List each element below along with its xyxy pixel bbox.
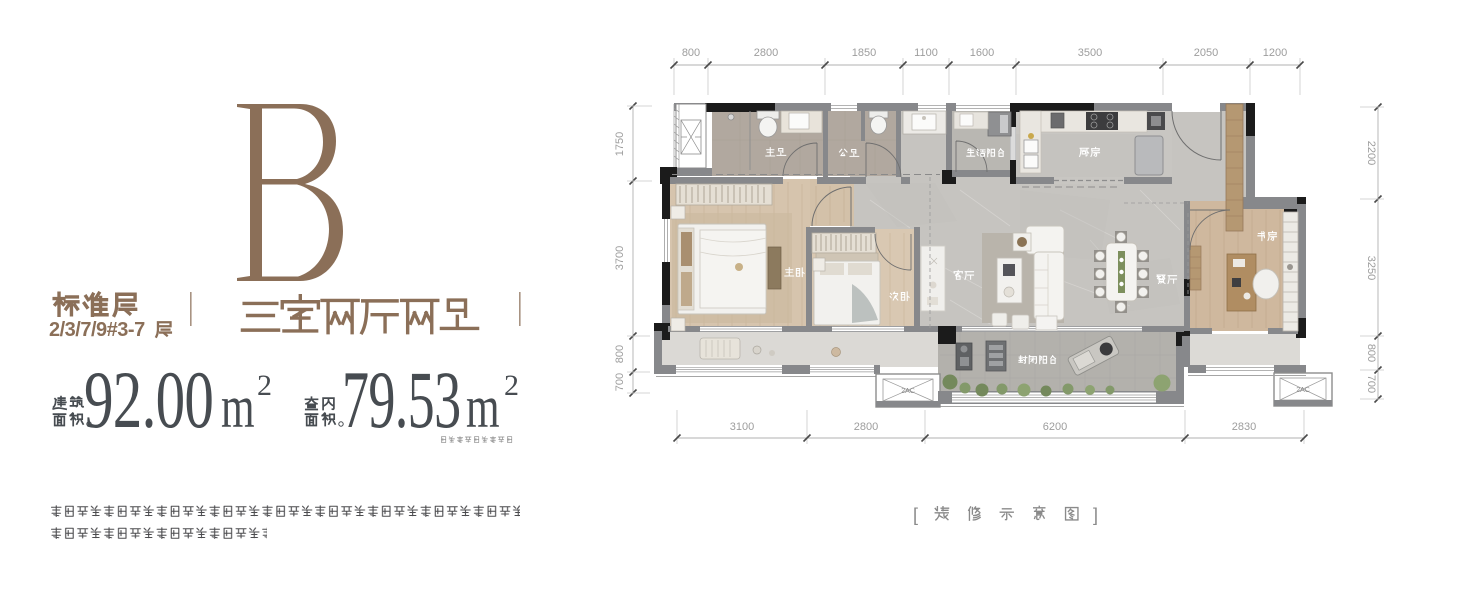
svg-text:1100: 1100 — [914, 47, 938, 59]
svg-text:m: m — [466, 374, 500, 441]
svg-text:]: ] — [1093, 505, 1098, 525]
svg-text:1600: 1600 — [970, 47, 994, 59]
svg-text:3500: 3500 — [1078, 47, 1102, 59]
svg-text:1850: 1850 — [852, 47, 876, 59]
svg-text:m: m — [221, 374, 255, 441]
svg-text:2800: 2800 — [854, 421, 878, 433]
svg-text:1200: 1200 — [1263, 47, 1287, 59]
svg-text:700: 700 — [1365, 375, 1377, 393]
svg-text:2AC: 2AC — [901, 388, 915, 395]
svg-text:92.00: 92.00 — [84, 355, 213, 446]
svg-text:2: 2 — [504, 369, 519, 402]
svg-text:800: 800 — [1365, 344, 1377, 362]
svg-text:2830: 2830 — [1232, 421, 1256, 433]
svg-text:2050: 2050 — [1194, 47, 1218, 59]
svg-text:800: 800 — [614, 345, 626, 363]
svg-text:2800: 2800 — [754, 47, 778, 59]
svg-text:3250: 3250 — [1365, 256, 1377, 280]
svg-text:3700: 3700 — [614, 246, 626, 270]
svg-text:700: 700 — [614, 373, 626, 391]
svg-text:2: 2 — [257, 369, 272, 402]
svg-text:2/3/7/9#3-7: 2/3/7/9#3-7 — [49, 319, 145, 341]
svg-text:6200: 6200 — [1043, 421, 1067, 433]
svg-text:800: 800 — [682, 47, 700, 59]
svg-text:2AC: 2AC — [1296, 387, 1310, 394]
svg-text:1750: 1750 — [614, 132, 626, 156]
svg-text:[: [ — [913, 505, 918, 525]
svg-text:2200: 2200 — [1365, 141, 1377, 165]
svg-text:79.53: 79.53 — [342, 355, 460, 446]
svg-text:3100: 3100 — [730, 421, 754, 433]
